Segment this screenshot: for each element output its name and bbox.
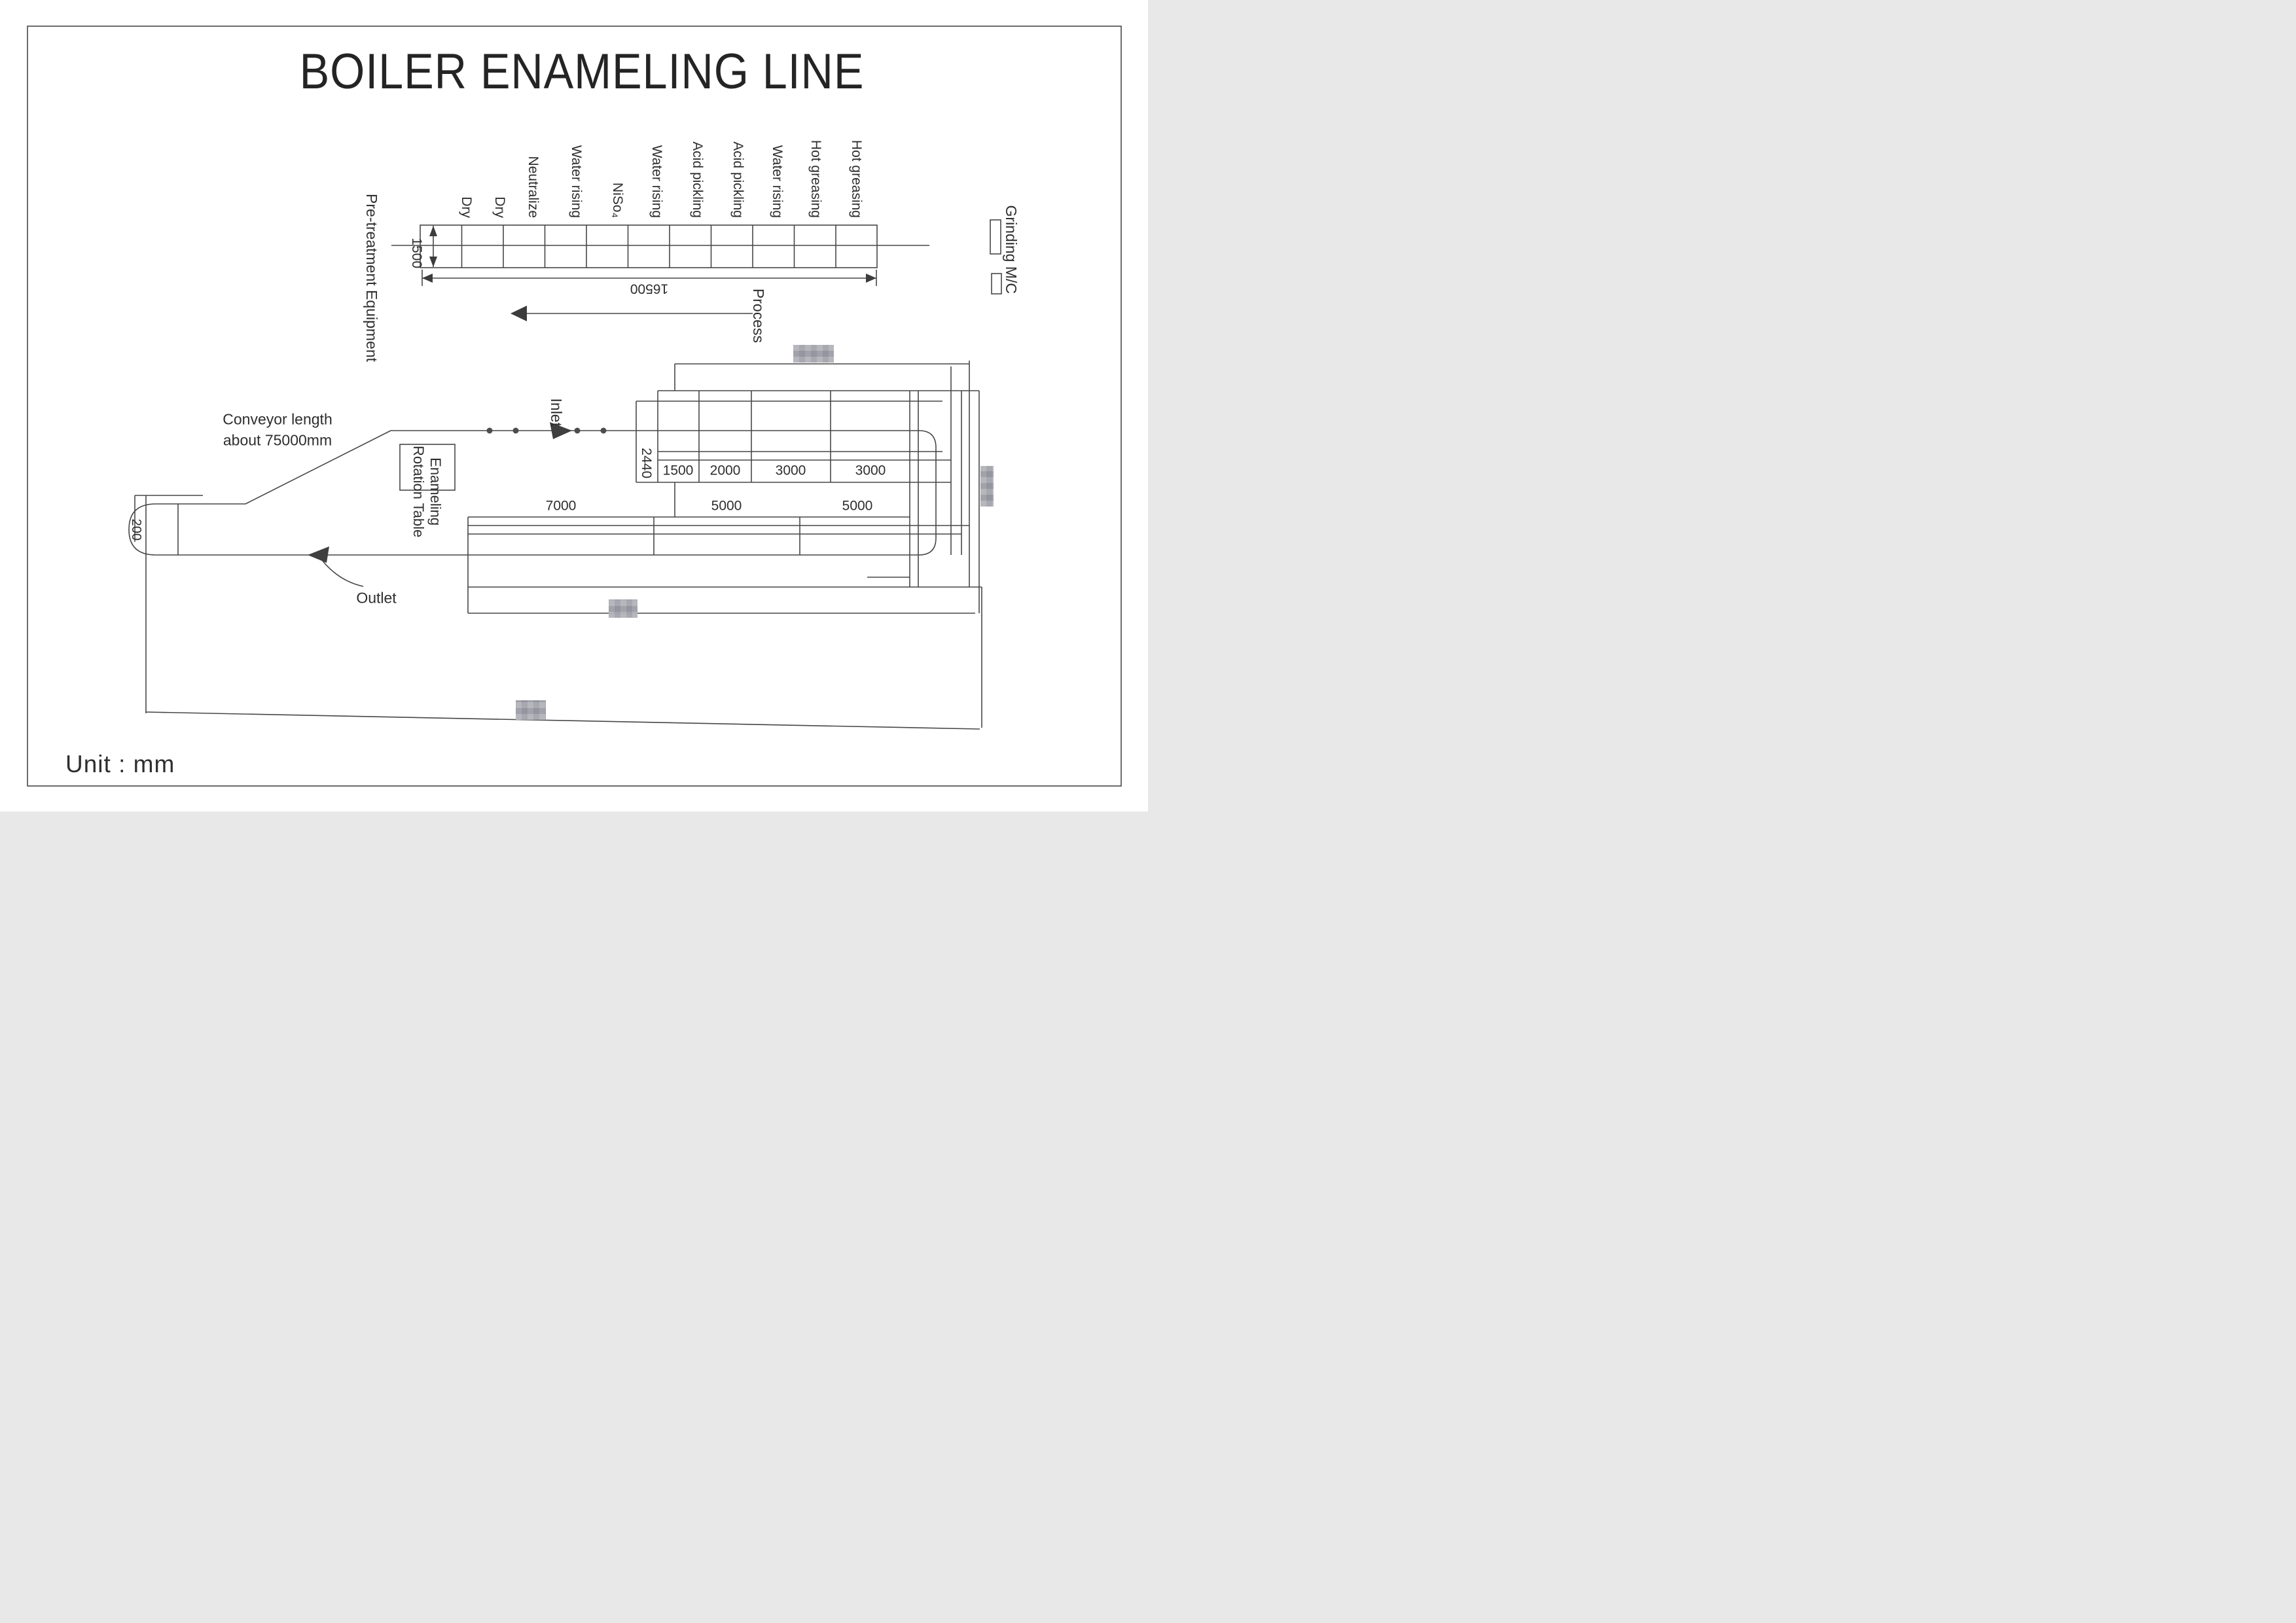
process-stage-label: Acid pickling bbox=[730, 141, 745, 218]
grinding-machine-label: Grinding M/C bbox=[1003, 205, 1019, 294]
process-stage-label: Water rising bbox=[649, 145, 664, 218]
furnace-cell-dimension: 5000 bbox=[842, 498, 873, 513]
conveyor-length-note-line2: about 75000mm bbox=[223, 432, 332, 448]
drawing-sheet: BOILER ENAMELING LINE Dry Dry Neutralize… bbox=[0, 0, 1148, 811]
tank-height-dimension bbox=[429, 226, 437, 267]
top-cell-dimension: 3000 bbox=[776, 463, 806, 478]
process-stage-label: NiSo₄ bbox=[610, 183, 625, 218]
redacted-text-block bbox=[793, 345, 834, 363]
redacted-text-block bbox=[609, 599, 637, 618]
loop-offset-dimension-value: 200 bbox=[129, 519, 143, 541]
outlet-label: Outlet bbox=[356, 590, 396, 606]
process-stage-label: Water rising bbox=[569, 145, 584, 218]
rotation-table-label: Enameling Rotation Table bbox=[410, 446, 444, 537]
pretreatment-tank-row bbox=[420, 225, 877, 268]
rotation-table-label-line2: Rotation Table bbox=[410, 446, 427, 537]
furnace-cell-dimension: 5000 bbox=[711, 498, 742, 513]
rotation-table-label-line1: Enameling bbox=[427, 446, 444, 537]
conveyor-loop-path bbox=[129, 431, 936, 555]
process-stage-label: Hot greasing bbox=[849, 140, 864, 218]
layout-height-dimension-value: 2440 bbox=[639, 448, 654, 478]
conveyor-length-note-line1: Conveyor length bbox=[223, 411, 332, 427]
outlet-arrow-icon bbox=[308, 546, 329, 563]
process-stage-label: Neutralize bbox=[526, 156, 541, 218]
tank-length-dimension-value: 16500 bbox=[630, 281, 668, 296]
process-stage-label: Water rising bbox=[770, 145, 785, 218]
process-stage-label: Acid pickling bbox=[690, 141, 705, 218]
pretreatment-equipment-label: Pre-treatment Equipment bbox=[363, 194, 380, 362]
process-stage-label: Dry bbox=[492, 196, 507, 218]
outlet-leader-line bbox=[322, 560, 363, 586]
inlet-label: Inlet bbox=[548, 399, 564, 427]
process-direction-arrow bbox=[511, 306, 753, 321]
top-cell-dimension: 2000 bbox=[710, 463, 741, 478]
redacted-text-block bbox=[516, 700, 546, 720]
top-cell-dimension: 1500 bbox=[663, 463, 694, 478]
tank-height-dimension-value: 1500 bbox=[409, 238, 424, 268]
process-direction-label: Process bbox=[750, 289, 766, 343]
process-stage-label: Dry bbox=[459, 196, 474, 218]
redacted-text-block bbox=[980, 466, 994, 507]
loop-offset-lines bbox=[135, 495, 203, 542]
furnace-cell-dimension: 7000 bbox=[546, 498, 577, 513]
unit-note: Unit : mm bbox=[65, 751, 175, 778]
top-cell-dimension: 3000 bbox=[855, 463, 886, 478]
drawing-frame bbox=[27, 26, 1121, 786]
page-title: BOILER ENAMELING LINE bbox=[300, 45, 865, 99]
grinding-machine-symbols bbox=[990, 220, 1001, 294]
process-stage-label: Hot greasing bbox=[808, 140, 823, 218]
